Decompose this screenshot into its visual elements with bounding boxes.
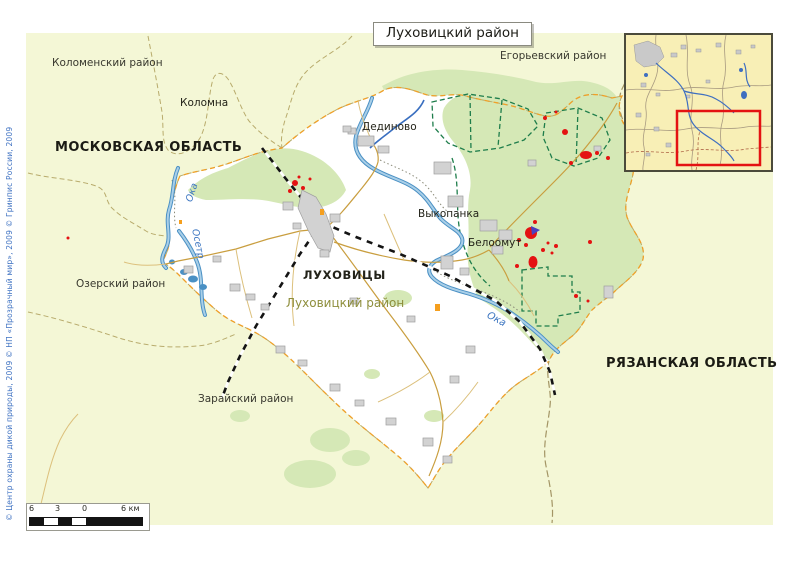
label-ryazan-oblast: РЯЗАНСКАЯ ОБЛАСТЬ <box>606 356 777 371</box>
map-title: Луховицкий район <box>373 22 532 46</box>
scale-tick-0: 0 <box>82 504 87 513</box>
inset-canvas <box>626 35 771 170</box>
label-kolomna-city: Коломна <box>180 97 228 109</box>
label-egoryevsky-district: Егорьевский район <box>500 50 606 62</box>
label-dedinovo-town: Дединово <box>362 121 417 133</box>
label-vykopanka-town: Выкопанка <box>418 208 479 220</box>
map-page: Коломенский район Коломна МОСКОВСКАЯ ОБЛ… <box>0 0 800 566</box>
label-beloomut-town: Белоомут <box>468 237 521 249</box>
label-kolomensky-district: Коломенский район <box>52 57 163 69</box>
label-lukhovitsky-district: Луховицкий район <box>286 296 404 310</box>
scale-bar: 6 3 0 6 км <box>26 503 150 531</box>
scale-tick-6-left: 6 <box>29 504 34 513</box>
label-zaraysky-district: Зарайский район <box>198 393 293 405</box>
label-ozersky-district: Озерский район <box>76 278 165 290</box>
label-lukhovitsy-city: ЛУХОВИЦЫ <box>303 268 386 282</box>
inset-overview-map <box>624 33 773 172</box>
copyright-text: © Центр охраны дикой природы, 2009 © НП … <box>5 127 14 521</box>
label-moscow-oblast: МОСКОВСКАЯ ОБЛАСТЬ <box>55 140 242 155</box>
scale-tick-3: 3 <box>55 504 60 513</box>
scale-tick-6-right: 6 км <box>121 504 140 513</box>
scale-bar-graphic <box>29 517 145 527</box>
